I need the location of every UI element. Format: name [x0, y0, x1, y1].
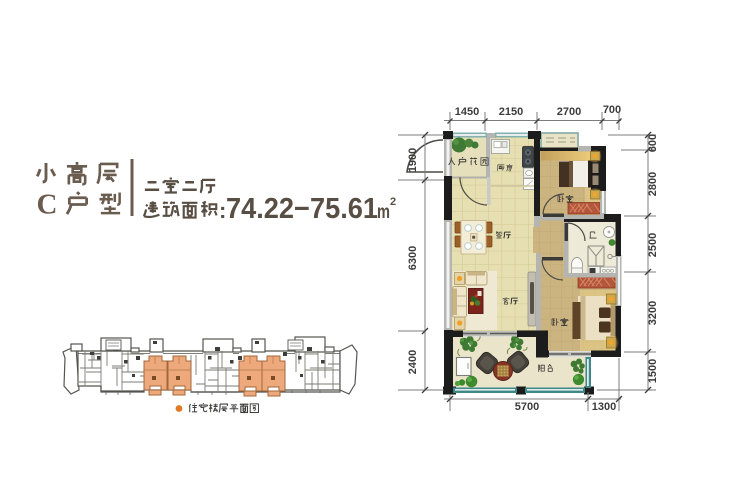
svg-text:74.22−75.61: 74.22−75.61 [226, 193, 378, 225]
svg-text:2: 2 [390, 196, 396, 208]
svg-text:1500: 1500 [647, 359, 659, 383]
svg-text:m: m [377, 202, 390, 223]
svg-text:600: 600 [647, 134, 659, 152]
svg-text:1300: 1300 [592, 401, 616, 413]
svg-text:2800: 2800 [647, 172, 659, 196]
svg-text:6300: 6300 [407, 246, 419, 270]
svg-text:1900: 1900 [407, 148, 419, 172]
svg-text:C: C [37, 189, 58, 221]
svg-text:3200: 3200 [647, 301, 659, 325]
svg-text:1450: 1450 [455, 106, 479, 118]
svg-text:5700: 5700 [515, 401, 539, 413]
svg-text:2500: 2500 [647, 233, 659, 257]
svg-text:2700: 2700 [557, 106, 581, 118]
svg-text:2400: 2400 [407, 350, 419, 374]
svg-text:700: 700 [603, 104, 621, 116]
svg-text:2150: 2150 [499, 106, 523, 118]
